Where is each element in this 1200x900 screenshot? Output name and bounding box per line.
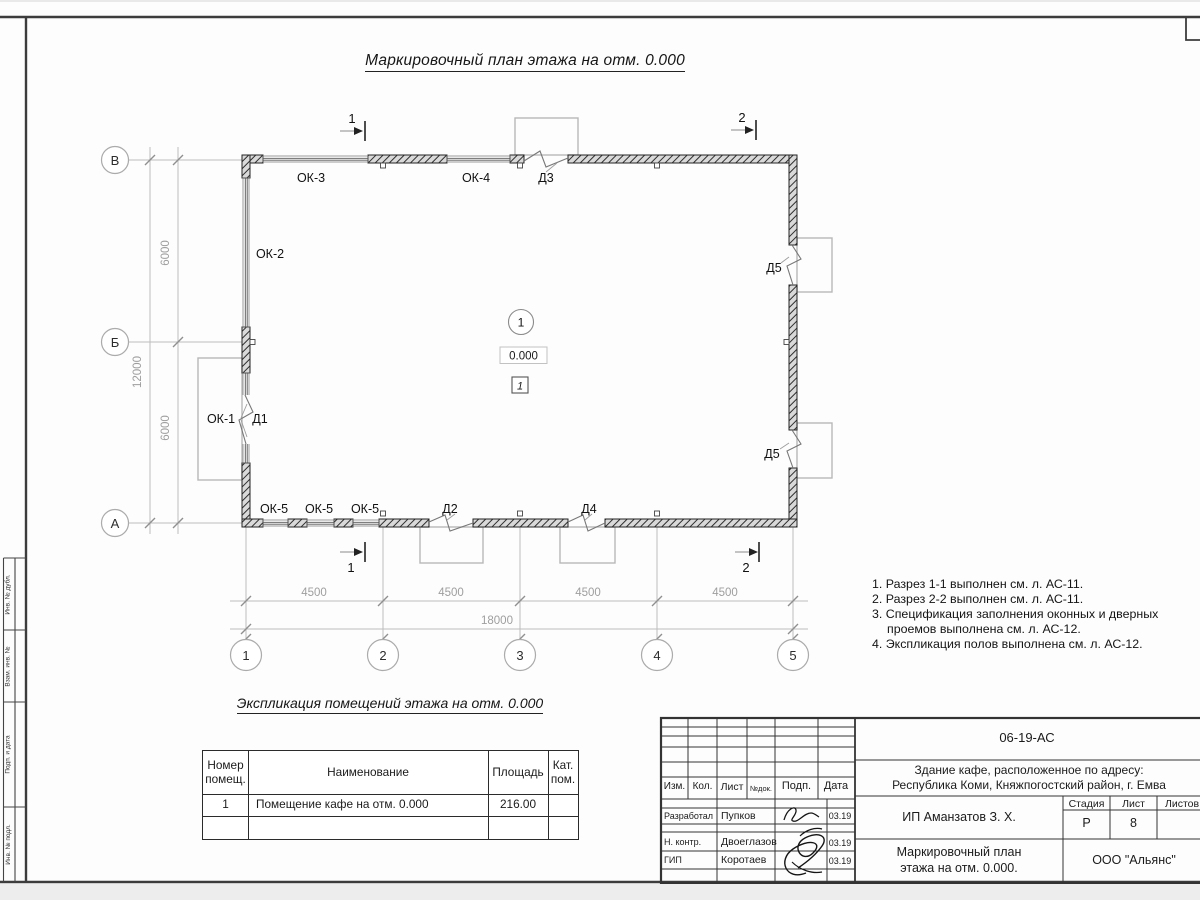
row-room-number: 1 [203, 798, 248, 812]
walls [242, 155, 797, 527]
porches [198, 118, 832, 563]
room-level: 0.000 [509, 351, 538, 363]
stage-header: Стадия [1063, 798, 1110, 810]
axis-col-2: 2 [379, 648, 386, 663]
plan-title: Маркировочный план этажа на отм. 0.000 [330, 52, 720, 70]
window-label-ok5-3: ОК-5 [351, 502, 379, 516]
section-mark-1-top: 1 [348, 111, 355, 126]
signature-developer [784, 808, 819, 821]
note-line-5: 4. Экспликация полов выполнена см. л. АС… [872, 637, 1197, 652]
note-line-2: 2. Разрез 2-2 выполнен см. л. АС-11. [872, 592, 1197, 607]
side-cell-vzam-inv: Взам. инв. № [2, 630, 15, 702]
opening-labels: ОК-3 ОК-4 Д3 ОК-2 ОК-1 Д1 Д5 Д5 ОК-5 ОК-… [207, 171, 782, 516]
room-number: 1 [518, 316, 525, 330]
signatures [784, 808, 824, 875]
windows [242, 155, 510, 527]
row-room-name: Помещение кафе на отм. 0.000 [256, 798, 484, 812]
object-address-line2: Республика Коми, Княжпогостский район, г… [860, 778, 1198, 792]
sheet-header: Лист [1110, 798, 1157, 810]
col-data: Дата [818, 780, 854, 792]
col-list: Лист [717, 781, 747, 793]
row-room-area: 216.00 [488, 798, 548, 812]
window-label-ok5-1: ОК-5 [260, 502, 288, 516]
explication-title-text: Экспликация помещений этажа на отм. 0.00… [237, 695, 543, 714]
col-podp: Подп. [775, 780, 818, 792]
col-ndoc: №док. [747, 784, 775, 793]
side-cell-podp-data: Подп. и дата [2, 702, 15, 807]
plan-title-text: Маркировочный план этажа на отм. 0.000 [365, 52, 685, 72]
sheet-frame [0, 17, 1200, 882]
axis-col-4: 4 [653, 648, 660, 663]
window-label-ok5-2: ОК-5 [305, 502, 333, 516]
window-label-ok2: ОК-2 [256, 247, 284, 261]
drawing-title-line1: Маркировочный план [857, 845, 1061, 859]
col-header-area: Площадь [488, 766, 548, 780]
axis-row-a: А [111, 516, 120, 531]
col-header-category: Кат. пом. [548, 759, 578, 786]
window-label-ok1: ОК-1 [207, 412, 235, 426]
section-mark-2-bottom: 2 [742, 560, 749, 575]
door-label-d3: Д3 [538, 171, 553, 185]
sheets-header: Листов [1157, 798, 1200, 810]
window-label-ok4: ОК-4 [462, 171, 490, 185]
dim-row-1: 6000 [160, 240, 172, 266]
dim-bay-3: 4500 [575, 587, 601, 599]
name-gip: Коротаев [721, 854, 775, 866]
name-checker: Двоеглазов [721, 836, 775, 848]
col-header-room-number: Номер помещ. [203, 759, 248, 786]
date-developer: 03.19 [827, 811, 853, 821]
object-address-line1: Здание кафе, расположенное по адресу: [860, 763, 1198, 777]
drawing-sheet: 4500 4500 4500 4500 18000 6000 6000 1200… [0, 0, 1200, 900]
note-line-3: 3. Спецификация заполнения оконных и две… [872, 607, 1197, 622]
col-kol: Кол. [688, 781, 717, 792]
dimension-values: 4500 4500 4500 4500 18000 6000 6000 1200… [132, 240, 738, 627]
col-izm: Изм. [661, 781, 688, 792]
notes: 1. Разрез 1-1 выполнен см. л. АС-11. 2. … [872, 577, 1197, 652]
doc-number: 06-19-АС [857, 730, 1197, 745]
room-markers: 1 0.000 1 [500, 310, 547, 394]
window-label-ok3: ОК-3 [297, 171, 325, 185]
corner-doc-box [1186, 17, 1200, 40]
floor-type-marker: 1 [517, 381, 523, 393]
table-divider [203, 794, 578, 795]
col-header-name: Наименование [248, 766, 488, 780]
organization-name: ООО "Альянс" [1063, 853, 1200, 867]
axis-row-v: В [111, 153, 120, 168]
note-line-4: проемов выполнена см. л. АС-12. [872, 622, 1197, 637]
door-openings [239, 151, 801, 531]
axis-col-3: 3 [516, 648, 523, 663]
note-line-1: 1. Разрез 1-1 выполнен см. л. АС-11. [872, 577, 1197, 592]
door-label-d2: Д2 [442, 502, 457, 516]
axis-row-b: Б [111, 335, 120, 350]
door-label-d1: Д1 [252, 412, 267, 426]
explication-table: Номер помещ. Наименование Площадь Кат. п… [202, 750, 579, 840]
dim-row-2: 6000 [160, 415, 172, 441]
side-cell-inv-dubl: Инв. № дубл. [2, 558, 15, 630]
dim-bay-2: 4500 [438, 587, 464, 599]
role-gip: ГИП [664, 855, 718, 865]
client-name: ИП Аманзатов З. Х. [857, 810, 1061, 824]
table-divider [203, 816, 578, 817]
section-mark-2-top: 2 [738, 110, 745, 125]
door-label-d4: Д4 [581, 502, 596, 516]
name-developer: Пупков [721, 810, 775, 822]
dim-bay-1: 4500 [301, 587, 327, 599]
door-label-d5-top: Д5 [766, 261, 781, 275]
section-mark-1-bottom: 1 [347, 560, 354, 575]
axis-col-1: 1 [242, 648, 249, 663]
scan-edge-bottom [0, 884, 1200, 900]
wall-axis-markers [250, 163, 789, 516]
role-checker: Н. контр. [664, 837, 718, 847]
stage-value: Р [1063, 816, 1110, 830]
date-checker: 03.19 [827, 838, 853, 848]
door-label-d5-bottom: Д5 [764, 447, 779, 461]
role-developer: Разработал [664, 811, 718, 821]
dim-total-h: 18000 [481, 615, 513, 627]
dimension-lines [129, 147, 808, 641]
sheet-number: 8 [1110, 816, 1157, 830]
scan-edge-top [0, 0, 1200, 2]
axis-col-5: 5 [789, 648, 796, 663]
dim-bay-4: 4500 [712, 587, 738, 599]
dim-total-v: 12000 [132, 356, 144, 388]
date-gip: 03.19 [827, 856, 853, 866]
drawing-title-line2: этажа на отм. 0.000. [857, 861, 1061, 875]
label-leaders [241, 163, 789, 520]
explication-title: Экспликация помещений этажа на отм. 0.00… [210, 695, 570, 711]
side-cell-inv-podl: Инв. № подл. [2, 807, 15, 882]
